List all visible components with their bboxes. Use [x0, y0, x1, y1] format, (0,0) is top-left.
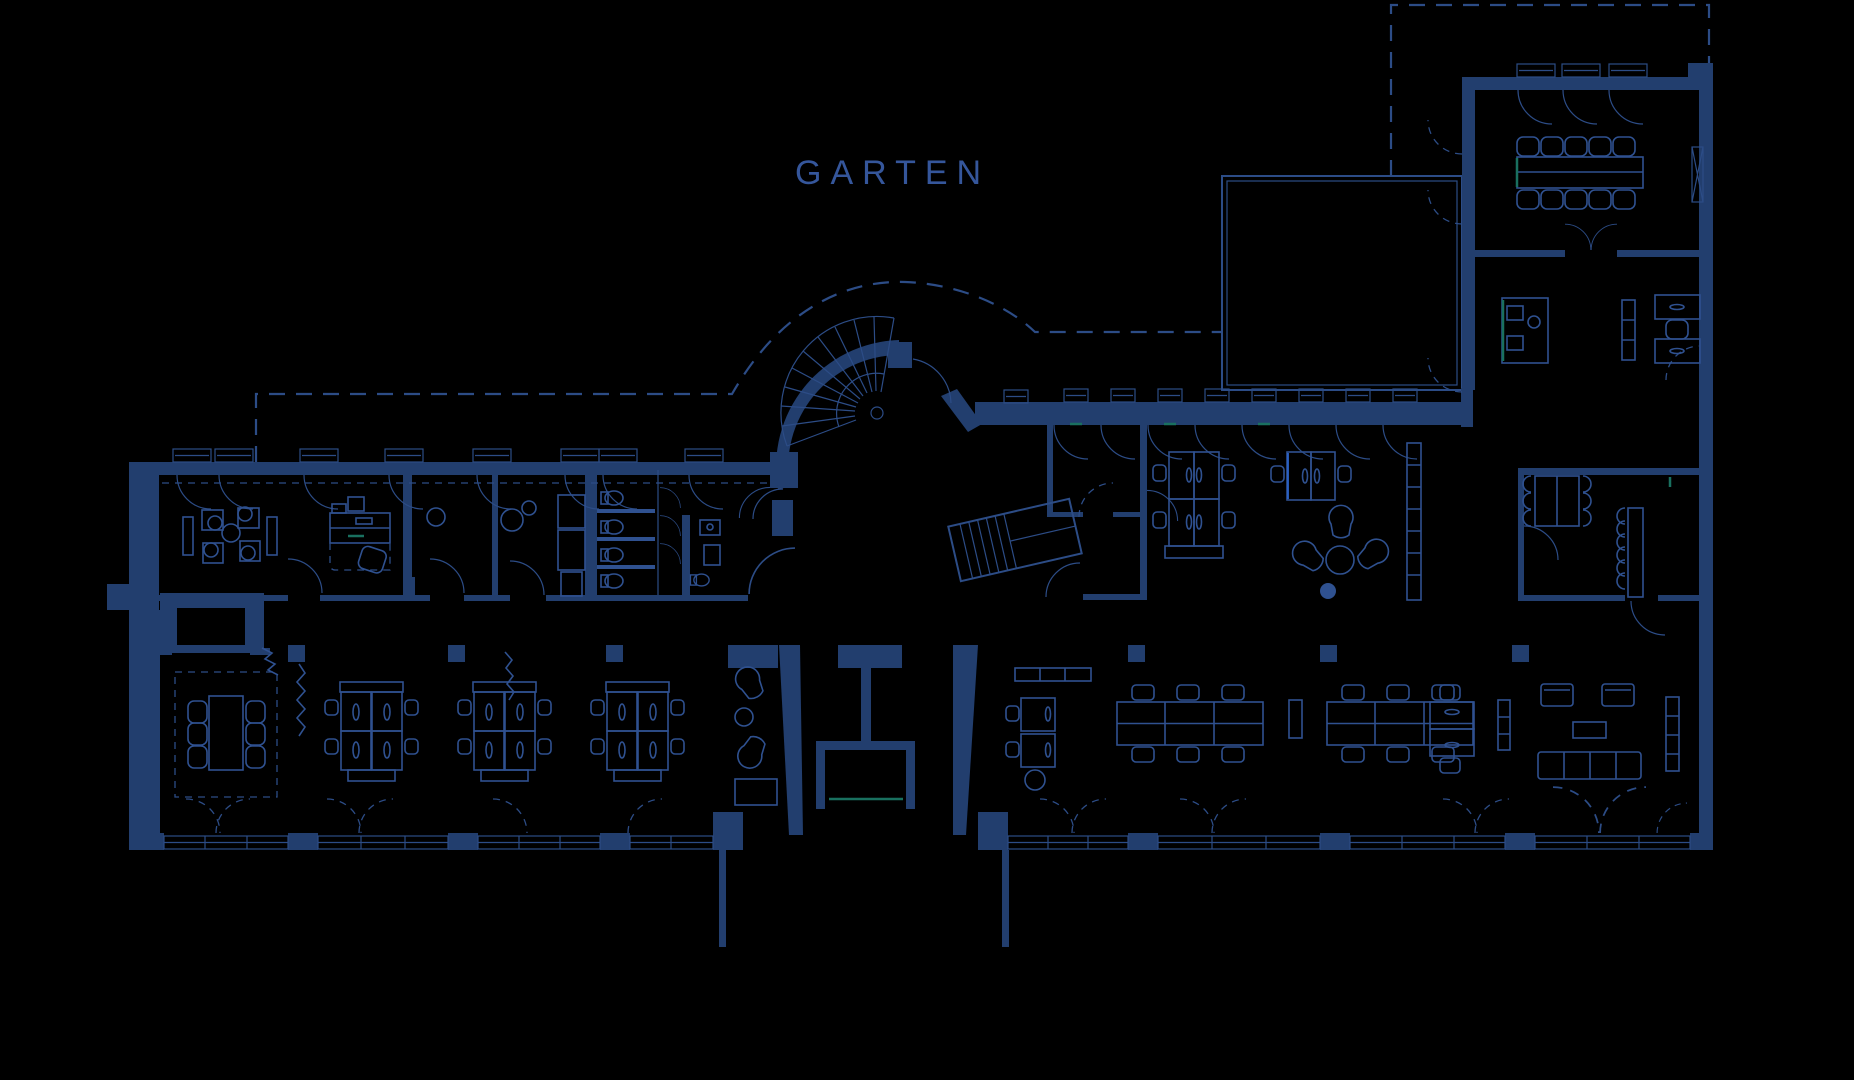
stairs — [152, 316, 1082, 655]
desk-pair-south — [1430, 685, 1474, 773]
exterior-stair-wall-right — [1002, 850, 1009, 947]
coffee-corner — [1288, 505, 1394, 599]
pillars — [288, 645, 1529, 662]
small-office — [501, 495, 585, 596]
curtain-2 — [297, 664, 305, 736]
bar-counter — [1628, 508, 1643, 597]
reception-desks — [1006, 668, 1091, 790]
meeting-table — [209, 696, 243, 770]
bench-table-1 — [1117, 685, 1263, 762]
west-wall — [107, 462, 160, 833]
entrance-lounge — [731, 663, 769, 773]
entrance-closet — [735, 779, 777, 805]
meeting-room — [175, 672, 277, 797]
stair-landing — [888, 342, 912, 368]
lounge-area — [1498, 684, 1679, 779]
desk-pod-3 — [591, 682, 684, 781]
desk-office — [330, 497, 445, 574]
terrace-outline — [1222, 176, 1462, 390]
north-wall-left-wing — [129, 462, 779, 475]
cabinet — [1289, 700, 1302, 738]
south-windows — [164, 836, 1690, 849]
counter-room — [1523, 476, 1670, 597]
desk-pod-4 — [1153, 452, 1235, 558]
spiral-staircase — [781, 316, 894, 446]
garten-label: GARTEN — [795, 154, 990, 192]
tall-shelf — [1407, 443, 1421, 600]
right-wing-walls — [1461, 63, 1713, 850]
floor-plan-page: GARTEN — [0, 0, 1854, 1080]
conference-room — [1517, 137, 1643, 209]
side-vestibule — [152, 593, 270, 655]
desk-pod-1 — [325, 682, 418, 781]
desk-pod-5 — [1271, 452, 1351, 500]
lounge-office — [183, 507, 277, 563]
exterior-stair-wall-left — [719, 850, 726, 947]
bench-table-2 — [1327, 685, 1473, 762]
desk-pod-2 — [458, 682, 551, 781]
floor-plan-svg: GARTEN — [0, 0, 1854, 1080]
garden-boundary — [256, 5, 1709, 462]
